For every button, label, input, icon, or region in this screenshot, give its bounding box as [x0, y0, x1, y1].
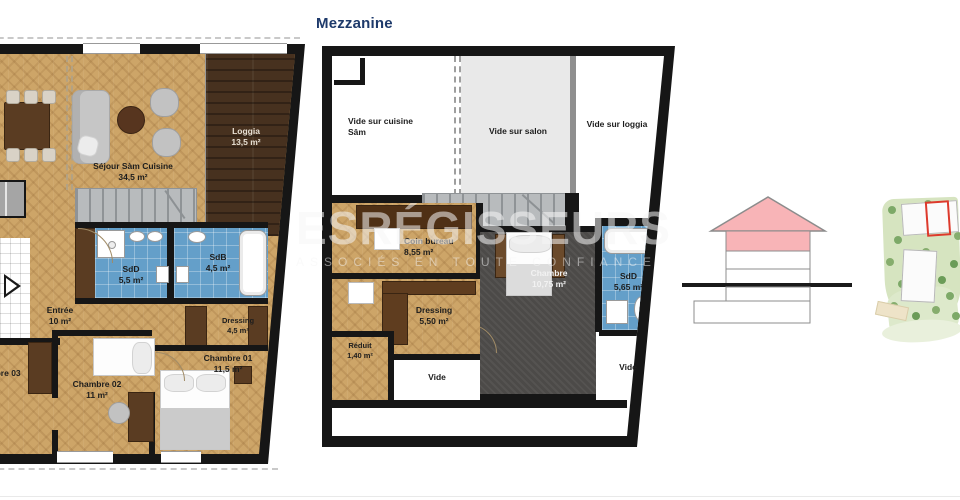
room-label-vide-loggia: Vide sur loggia: [576, 119, 658, 130]
room-name: Séjour Sàm Cuisine: [73, 161, 193, 172]
mezzanine-plan: Vide sur cuisine Sâm Vide sur salon Vide…: [318, 42, 690, 454]
desk-chair: [108, 402, 130, 424]
room-name: Chambre 03: [0, 368, 42, 379]
room-name: Entrée: [30, 305, 90, 316]
room-name: SdB: [192, 252, 244, 263]
floor-band: [726, 269, 810, 285]
room-label-sdd: SdD 5,5 m²: [105, 264, 157, 286]
floor-band-basement: [726, 287, 810, 301]
sink: [188, 231, 206, 243]
void-dashed-line: [454, 56, 456, 195]
building-section-diagram: [682, 193, 852, 333]
room-label-vide-cuisine: Vide sur cuisine Sâm: [348, 116, 440, 138]
staircase: [75, 188, 197, 224]
floorplan-sheet: Séjour Sàm Cuisine 34,5 m² Loggia 13,5 m…: [0, 0, 960, 500]
room-name: Chambre 01: [190, 353, 266, 364]
room-label-coin-bureau: Coin bureau 8,55 m²: [404, 236, 480, 258]
interior-wall: [595, 226, 602, 332]
bottom-void-band: [332, 408, 627, 436]
dining-table: [4, 102, 50, 150]
room-label-vide-2: Vide: [600, 362, 656, 373]
interior-wall: [388, 337, 394, 400]
sink: [129, 231, 145, 242]
room-name: Coin bureau: [404, 236, 480, 247]
entry-door-arrow-inner: [6, 278, 17, 294]
window: [200, 43, 287, 54]
room-label-chambre03: Chambre 03: [0, 368, 42, 379]
elevator-door-line: [5, 182, 7, 216]
ground-level-line: [682, 283, 852, 287]
interior-wall: [52, 336, 58, 398]
room-area: 11 m²: [62, 390, 132, 401]
room-name: Dressing: [208, 316, 268, 326]
room-name: Vide sur loggia: [576, 119, 658, 130]
sink: [606, 300, 628, 324]
room-label-vide-1: Vide: [404, 372, 470, 383]
room-name: Chambre: [512, 268, 586, 279]
floor-band: [726, 251, 810, 269]
dining-chair: [24, 148, 38, 162]
armchair: [152, 128, 181, 157]
window: [83, 43, 140, 54]
room-label-dressing-mezz: Dressing 5,50 m²: [402, 305, 466, 327]
mezzanine-title: Mezzanine: [316, 15, 393, 32]
room-label-sejour: Séjour Sàm Cuisine 34,5 m²: [73, 161, 193, 183]
site-highlight-red-box: [925, 200, 951, 237]
room-name: Réduit: [332, 341, 388, 351]
room-name: SdD: [105, 264, 157, 275]
room-name: Dressing: [402, 305, 466, 316]
site-map: [874, 192, 960, 352]
bottom-divider-line: [0, 496, 960, 497]
room-label-reduit: Réduit 1,40 m²: [332, 341, 388, 361]
interior-wall: [52, 330, 152, 336]
toilet: [156, 266, 169, 283]
interior-wall: [332, 195, 424, 203]
room-area: 34,5 m²: [73, 172, 193, 183]
window: [57, 451, 113, 463]
niche: [348, 282, 374, 304]
roof-overhang-dashes-top: [0, 37, 300, 39]
room-area: 1,40 m²: [332, 351, 388, 361]
room-label-sdb: SdB 4,5 m²: [192, 252, 244, 274]
dining-chair: [6, 148, 20, 162]
room-label-sdd-mezz: SdD 5,65 m²: [602, 271, 655, 293]
room-area: 5,5 m²: [105, 275, 157, 286]
room-label-loggia: Loggia 13,5 m²: [210, 126, 282, 148]
room-area: 8,55 m²: [404, 247, 480, 258]
room-area: 5,65 m²: [602, 282, 655, 293]
interior-wall: [332, 400, 627, 408]
room-name: Loggia: [210, 126, 282, 137]
dining-chair: [42, 90, 56, 104]
interior-wall: [167, 228, 174, 298]
room-name-2: Sâm: [348, 127, 440, 138]
room-name: Vide: [600, 362, 656, 373]
building-section-svg: [682, 193, 852, 333]
site-building-middle: [901, 249, 938, 303]
room-name: Vide sur salon: [473, 126, 563, 137]
ground-floor-plan: Séjour Sàm Cuisine 34,5 m² Loggia 13,5 m…: [0, 40, 318, 472]
highlighted-attic-floor: [726, 231, 810, 251]
dining-chair: [6, 90, 20, 104]
room-name: Vide: [404, 372, 470, 383]
wardrobe: [185, 306, 207, 348]
coffee-table: [117, 106, 145, 134]
foundation: [694, 301, 810, 323]
interior-wall: [599, 330, 658, 336]
dining-chair: [42, 148, 56, 162]
roof-shape: [711, 197, 825, 231]
interior-wall: [75, 298, 268, 304]
dining-chair: [24, 90, 38, 104]
desk: [356, 205, 472, 229]
room-area: 10,75 m²: [512, 279, 586, 290]
room-name: Vide sur cuisine: [348, 116, 440, 127]
room-area: 5,50 m²: [402, 316, 466, 327]
room-area: 11,5 m²: [190, 364, 266, 375]
room-label-dressing-ground: Dressing 4,5 m²: [208, 316, 268, 336]
loggia-glazing-line: [205, 52, 206, 236]
toilet: [176, 266, 189, 283]
room-name: SdD: [602, 271, 655, 282]
room-name: Chambre 02: [62, 379, 132, 390]
site-trees: [888, 206, 896, 214]
room-area: 10 m²: [30, 316, 90, 327]
bed-pillow: [196, 374, 226, 392]
interior-wall: [149, 345, 268, 351]
corner-detail: [334, 58, 365, 85]
armchair: [150, 88, 179, 117]
sink: [147, 231, 163, 242]
bed-pillow: [509, 235, 551, 253]
room-label-chambre01: Chambre 01 11,5 m²: [190, 353, 266, 375]
bed-blanket: [161, 408, 229, 449]
room-label-entree: Entrée 10 m²: [30, 305, 90, 327]
window: [161, 451, 201, 463]
cabinet: [374, 228, 400, 250]
room-label-vide-salon: Vide sur salon: [473, 126, 563, 137]
open-plan-dashed-line: [66, 56, 68, 190]
room-area: 13,5 m²: [210, 137, 282, 148]
balcony-dashes-bottom: [0, 468, 278, 470]
room-label-chambre02: Chambre 02 11 m²: [62, 379, 132, 401]
room-label-chambre-mezz: Chambre 10,75 m²: [512, 268, 586, 290]
bed-pillow: [132, 342, 152, 374]
elevator: [0, 180, 26, 218]
room-area: 4,5 m²: [208, 326, 268, 336]
interior-wall: [394, 354, 480, 360]
room-area: 4,5 m²: [192, 263, 244, 274]
